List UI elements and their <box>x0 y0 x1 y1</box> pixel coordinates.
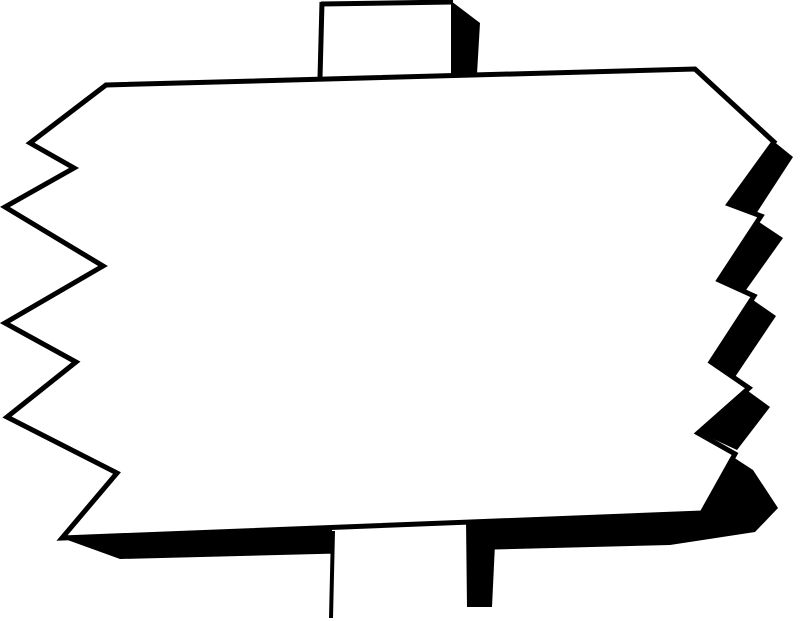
top-post-face <box>320 1 453 79</box>
top-post-left-edge <box>320 2 322 78</box>
top-post-top-edge <box>321 2 453 4</box>
bottom-post-face <box>332 520 468 621</box>
sign-svg <box>0 0 800 621</box>
bottom-post-shadow <box>466 520 496 607</box>
sign-board <box>5 69 774 538</box>
signpost-clipart <box>0 0 800 621</box>
top-post-shadow <box>451 1 480 74</box>
bottom-post-left-edge <box>331 531 333 618</box>
